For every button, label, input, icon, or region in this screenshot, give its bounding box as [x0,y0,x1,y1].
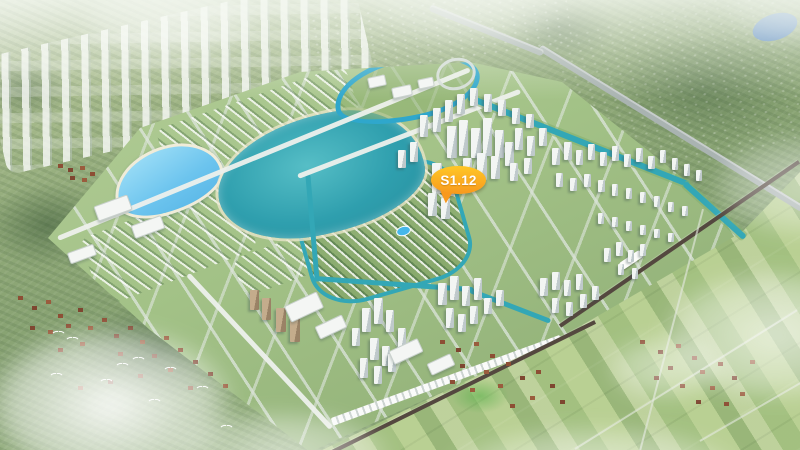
bird-icon [66,336,77,341]
bird-icon [132,356,143,361]
bird-icon [196,385,207,390]
bird-icon [148,398,159,403]
bird-icon [164,366,175,371]
bird-icon [100,378,111,383]
bird-icon [116,362,127,367]
bird-icon [220,424,231,429]
birds-layer [0,0,800,450]
plot-marker[interactable]: S1.12 [431,166,486,194]
bird-icon [52,330,63,335]
aerial-masterplan-view: S1.12 [0,0,800,450]
plot-marker-label: S1.12 [440,173,476,188]
bird-icon [50,372,61,377]
